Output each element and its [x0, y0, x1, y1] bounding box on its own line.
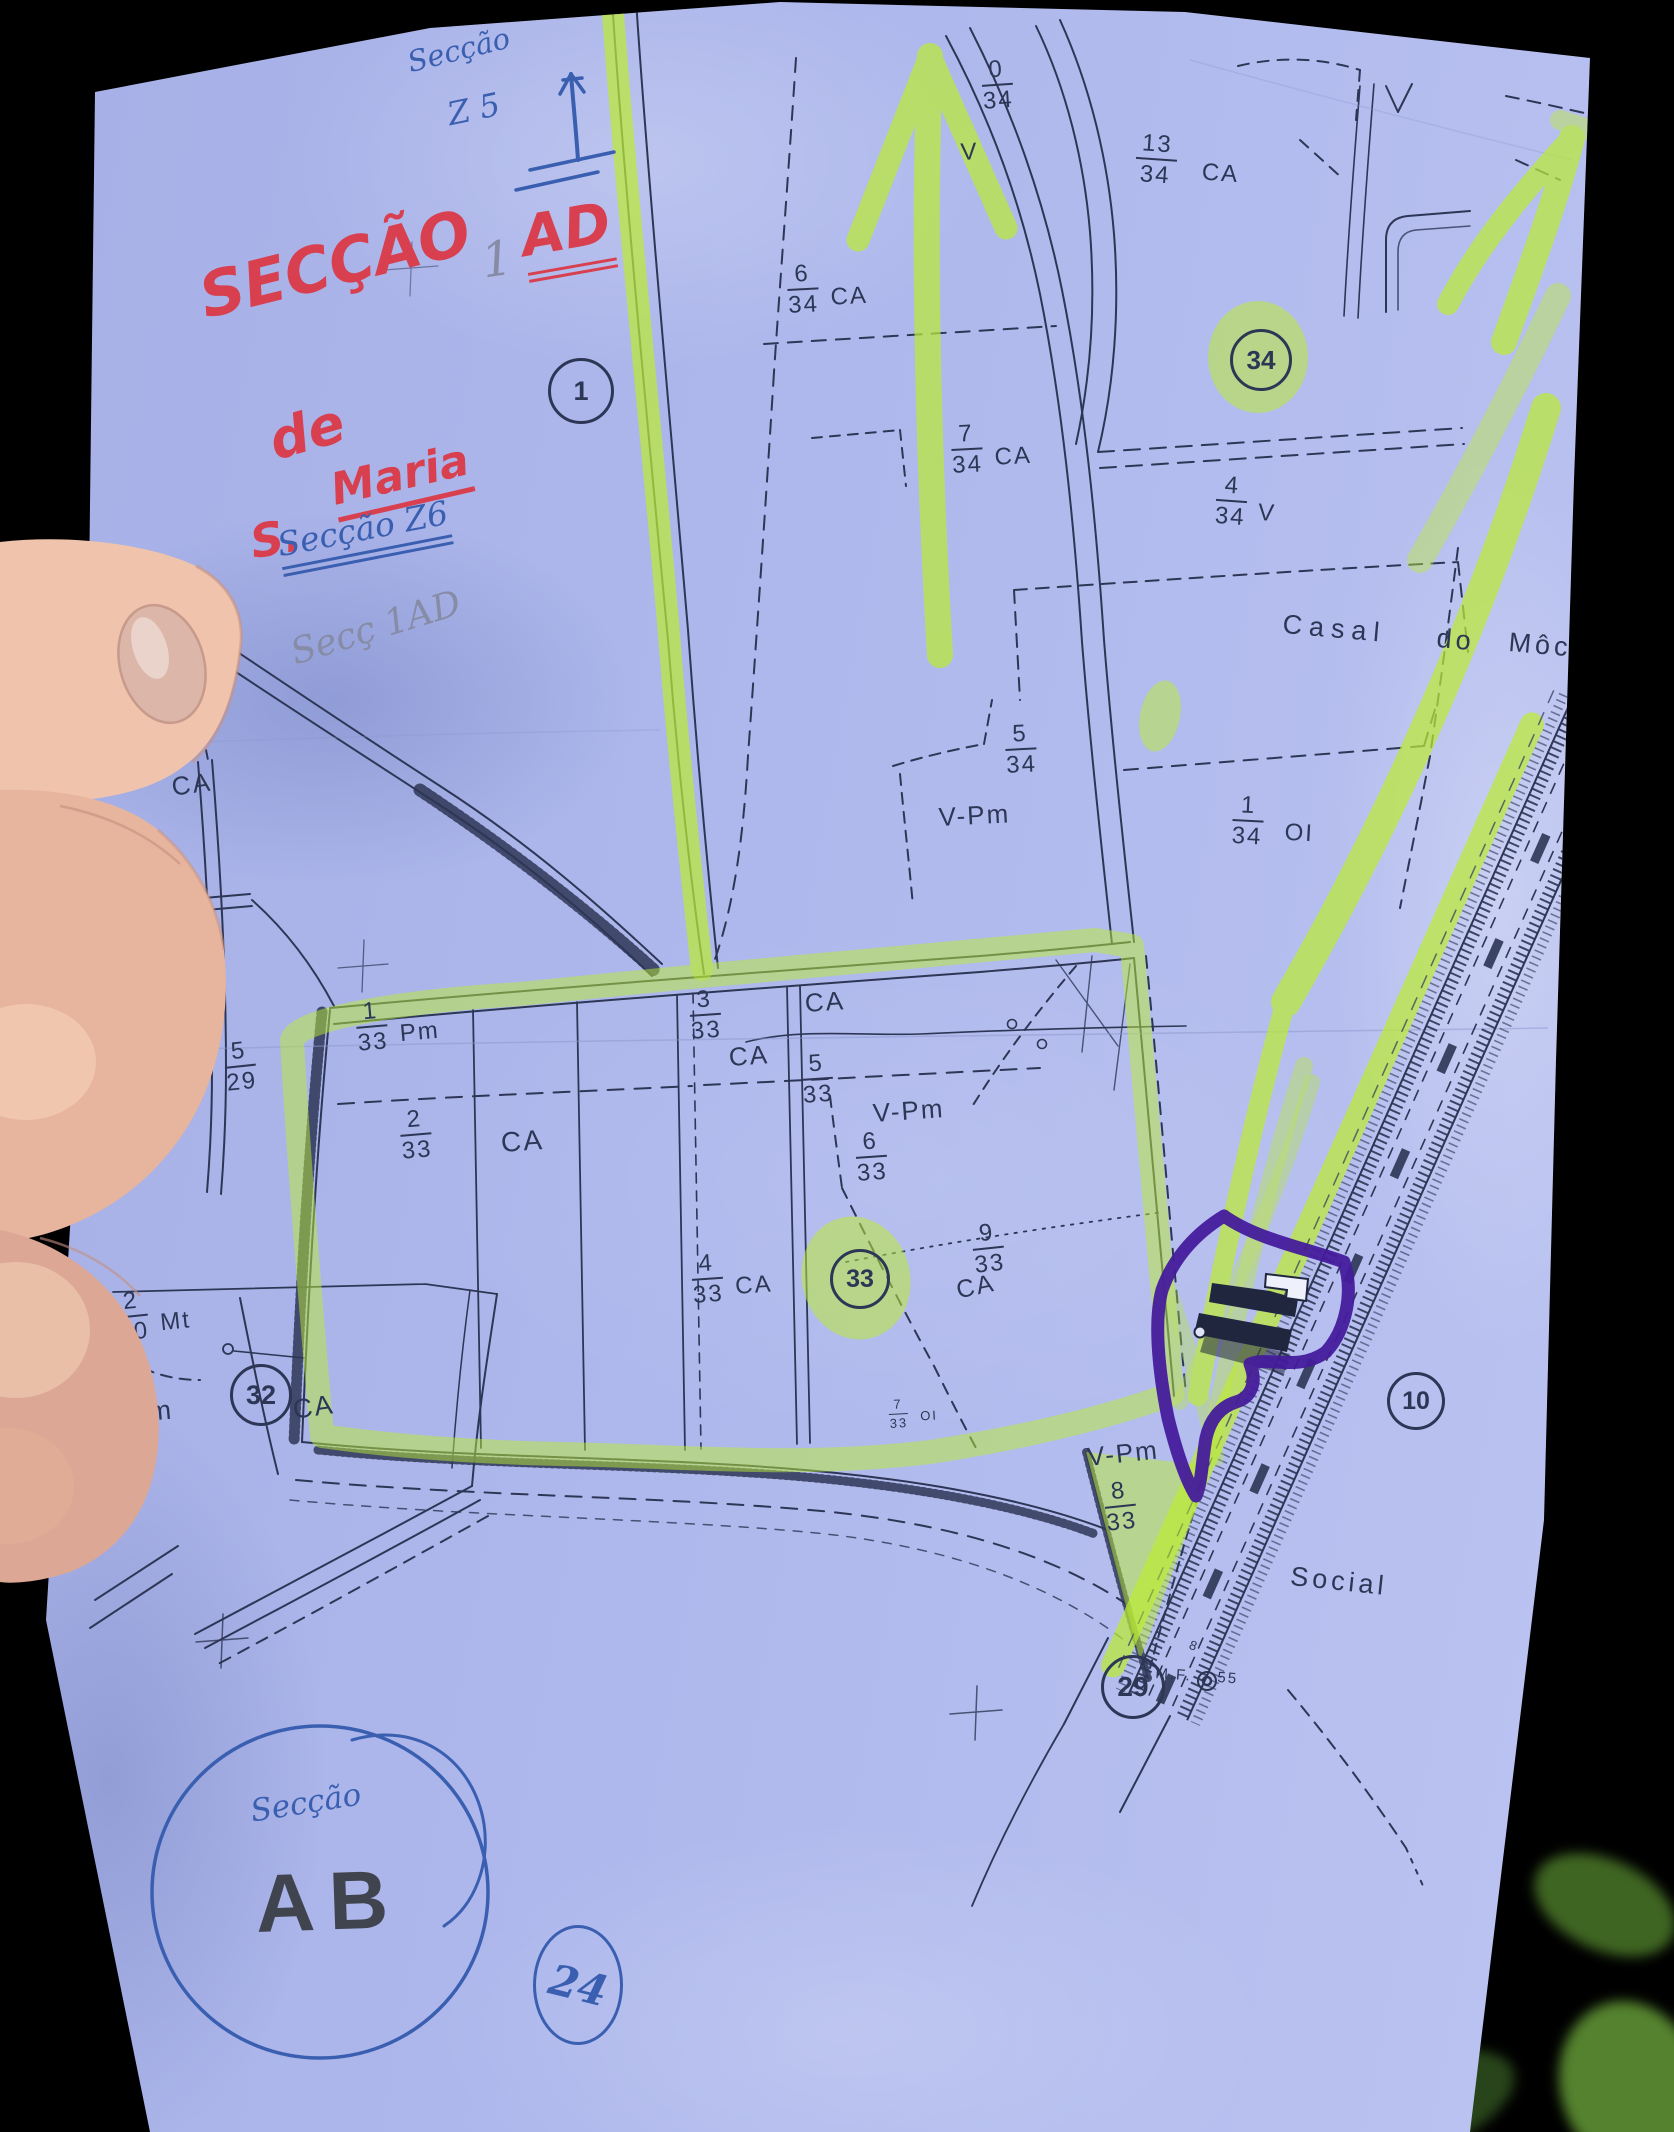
photo-scene: 0341334CA634CA734CA434V534134OI514529133… [0, 0, 1674, 2132]
hand [0, 0, 1674, 2132]
